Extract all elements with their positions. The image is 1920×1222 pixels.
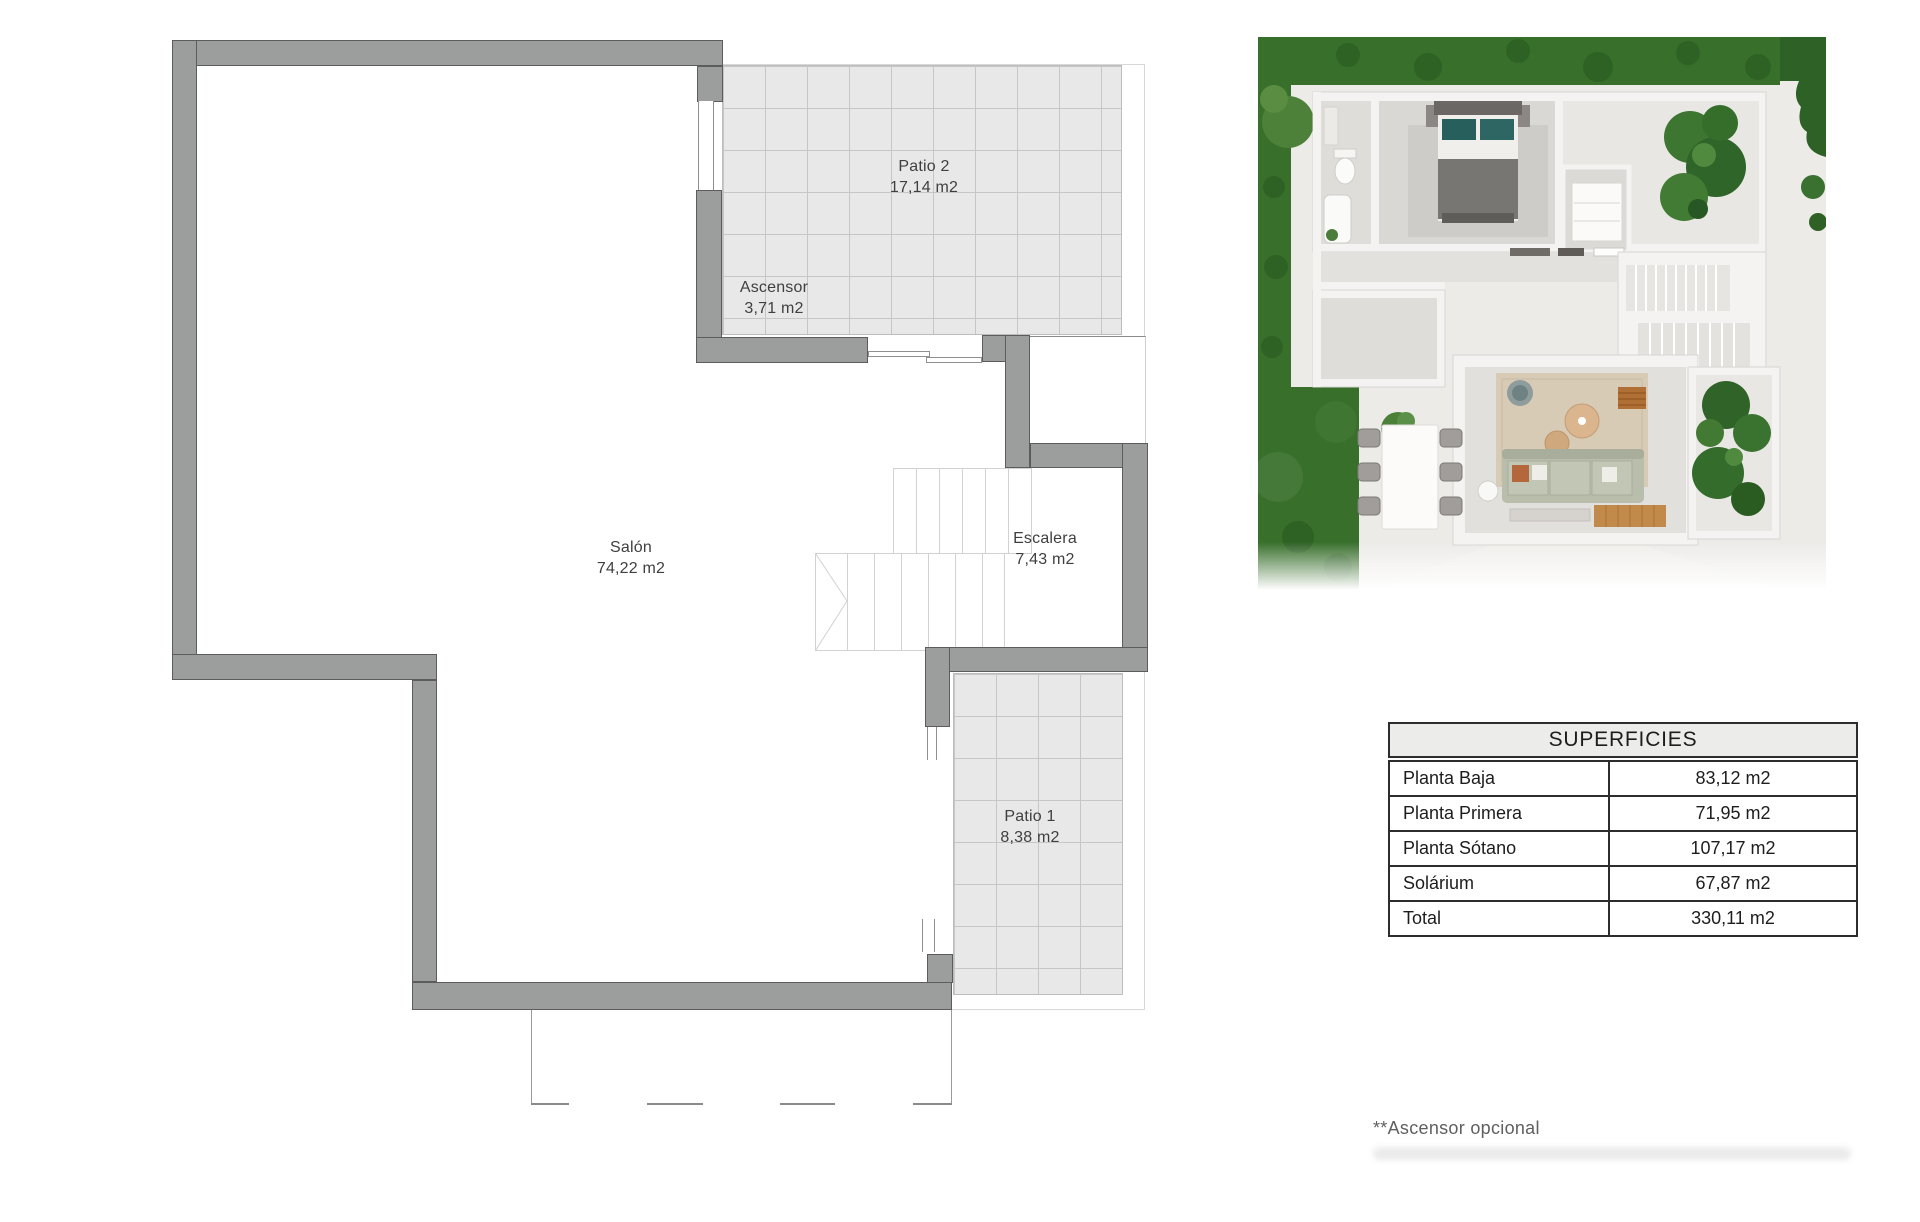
room-area: 8,38 m2	[945, 827, 1115, 848]
dining-table	[1382, 425, 1438, 529]
row-label: Solárium	[1390, 867, 1610, 900]
surfaces-table-title: SUPERFICIES	[1388, 722, 1858, 758]
row-label: Planta Sótano	[1390, 832, 1610, 865]
room-area: 7,43 m2	[960, 549, 1130, 570]
house-plate	[1313, 92, 1766, 252]
door-symbol	[927, 727, 937, 760]
wall-escalera-bottom	[925, 647, 1148, 672]
surfaces-table: SUPERFICIES Planta Baja 83,12 m2 Planta …	[1388, 722, 1858, 937]
row-label: Total	[1390, 902, 1610, 935]
room-name: Ascensor	[689, 277, 859, 298]
row-value: 71,95 m2	[1610, 797, 1856, 830]
room-label-patio1: Patio 1 8,38 m2	[945, 806, 1115, 848]
tv-console	[1510, 509, 1590, 521]
wall-patio1-left-bot	[927, 954, 953, 983]
wall-step	[172, 654, 437, 680]
plot-line-bottom	[951, 1009, 1145, 1010]
room-name: Patio 1	[945, 806, 1115, 827]
surfaces-table-body: Planta Baja 83,12 m2 Planta Primera 71,9…	[1388, 760, 1858, 937]
table-row: Solárium 67,87 m2	[1390, 865, 1856, 900]
room-name: Patio 2	[839, 156, 1009, 177]
row-value: 83,12 m2	[1610, 762, 1856, 795]
sofa	[1502, 449, 1644, 503]
living-room	[1453, 355, 1698, 545]
terrace-dash	[647, 1103, 703, 1105]
wall-notch-left	[1005, 335, 1030, 468]
room-name: Escalera	[960, 528, 1130, 549]
wall-bottom	[412, 982, 952, 1010]
row-value: 330,11 m2	[1610, 902, 1856, 935]
room-area: 74,22 m2	[546, 558, 716, 579]
row-label: Planta Baja	[1390, 762, 1610, 795]
terrace-dash	[531, 1103, 569, 1105]
door-symbol	[922, 919, 935, 952]
room-label-salon: Salón 74,22 m2	[546, 537, 716, 579]
wall-top-stub	[697, 66, 723, 102]
room-area: 3,71 m2	[689, 298, 859, 319]
sliding-door-symbol	[926, 357, 982, 363]
wall-left-lower	[412, 680, 437, 982]
wall-top	[172, 40, 723, 66]
room-label-ascensor: Ascensor 3,71 m2	[689, 277, 859, 319]
row-value: 107,17 m2	[1610, 832, 1856, 865]
row-value: 67,87 m2	[1610, 867, 1856, 900]
wall-ascensor-bottom	[696, 337, 868, 363]
wall-patio1-left-top	[925, 647, 950, 727]
render-3d	[1258, 37, 1826, 590]
dresser	[1572, 183, 1622, 241]
terrace-line-right	[951, 1010, 952, 1105]
bed	[1408, 101, 1548, 237]
terrace-dash	[780, 1103, 835, 1105]
table-row: Planta Baja 83,12 m2	[1390, 762, 1856, 795]
room-label-patio2: Patio 2 17,14 m2	[839, 156, 1009, 198]
patio-plants-room	[1688, 367, 1780, 539]
room-area: 17,14 m2	[839, 177, 1009, 198]
footnote-ascensor-opcional: **Ascensor opcional	[1373, 1118, 1540, 1139]
blurred-watermark	[1373, 1147, 1851, 1160]
terrace-line-left	[531, 1010, 532, 1105]
pouf	[1478, 481, 1498, 501]
row-label: Planta Primera	[1390, 797, 1610, 830]
floor-plan-2d: Patio 2 17,14 m2 Ascensor 3,71 m2 Salón …	[0, 0, 1220, 1222]
table-row: Planta Primera 71,95 m2	[1390, 795, 1856, 830]
room-name: Salón	[546, 537, 716, 558]
table-row: Planta Sótano 107,17 m2	[1390, 830, 1856, 865]
table-row: Total 330,11 m2	[1390, 900, 1856, 935]
window-symbol	[698, 101, 714, 190]
wood-bench	[1618, 387, 1646, 409]
sliding-door-symbol	[868, 351, 930, 357]
dining-set	[1358, 425, 1462, 529]
wall-left	[172, 40, 197, 680]
room-label-escalera: Escalera 7,43 m2	[960, 528, 1130, 570]
terrace-dash	[913, 1103, 952, 1105]
notch-room	[1030, 336, 1146, 443]
